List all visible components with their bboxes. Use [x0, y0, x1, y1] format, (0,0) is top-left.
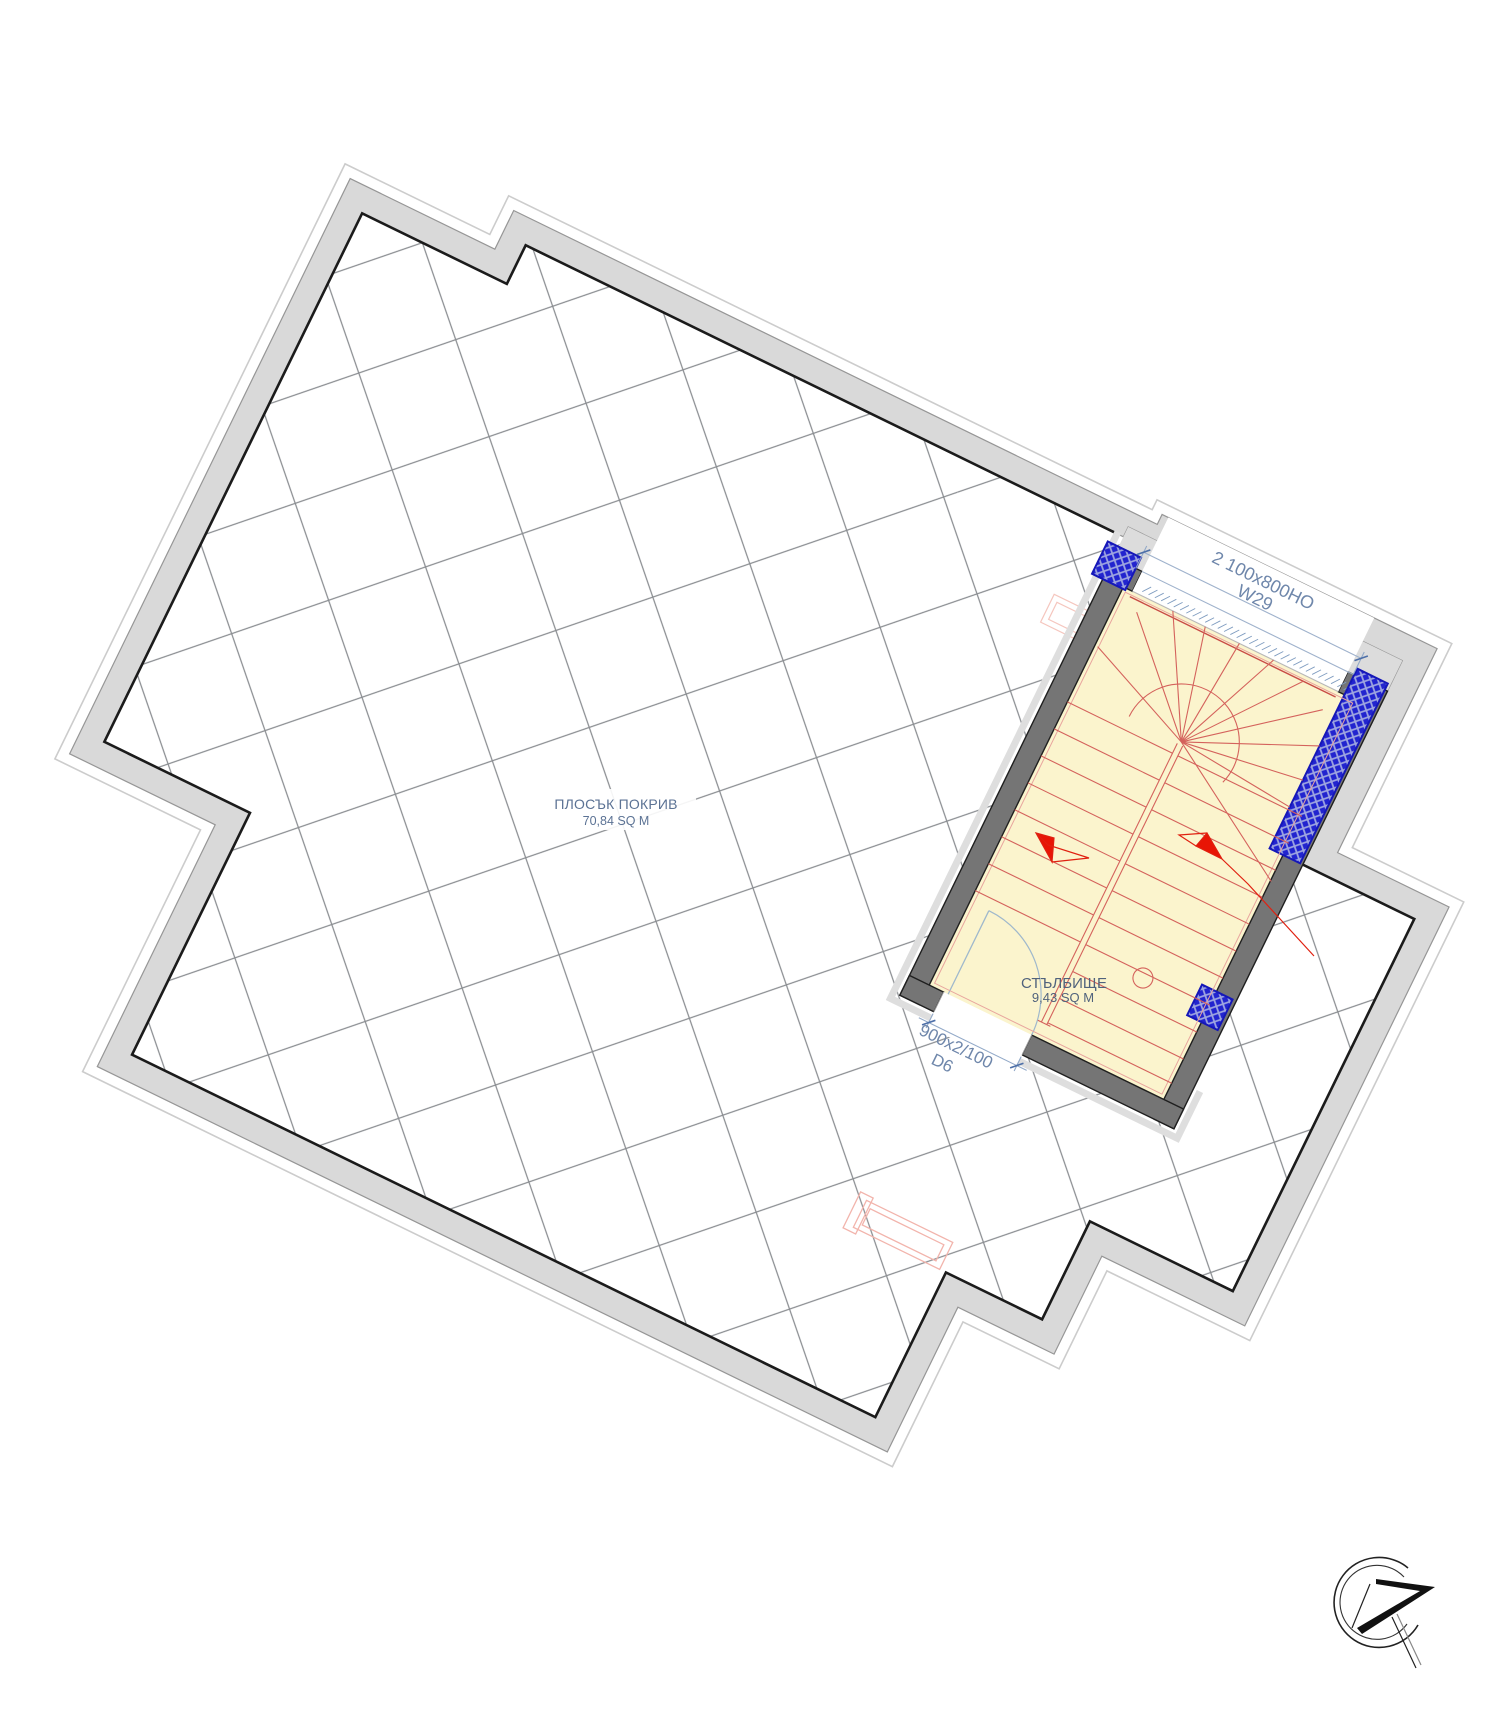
svg-text:9,43 SQ M: 9,43 SQ M	[1032, 990, 1094, 1005]
svg-text:70,84 SQ M: 70,84 SQ M	[583, 814, 650, 828]
svg-text:ПЛОСЪК ПОКРИВ: ПЛОСЪК ПОКРИВ	[554, 796, 677, 812]
